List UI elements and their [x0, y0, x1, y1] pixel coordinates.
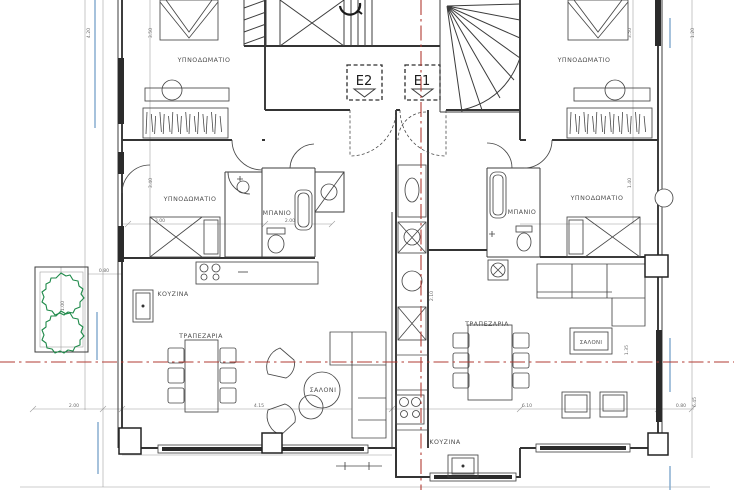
service-strip	[396, 165, 428, 430]
elevator-e2-label: E2	[356, 74, 373, 89]
elevator-shaft-x	[280, 0, 344, 46]
dimension-label: 6.10	[522, 403, 532, 409]
elevator-e1-box: E1	[405, 65, 440, 100]
sofa-right	[537, 264, 645, 326]
side-table-circle	[162, 80, 182, 100]
dimension-label: 2.00	[69, 403, 79, 409]
room-label-left-dining: ΤΡΑΠΕΖΑΡΙΑ	[178, 333, 223, 340]
dimension-label: 4.20	[86, 28, 92, 38]
dimension-label: 3.00	[155, 218, 165, 224]
room-label-right-bedroom-mid: ΥΠΝΟΔΩΜΑΤΙΟ	[570, 195, 624, 202]
floor-plan-page: E2 E1	[0, 0, 734, 490]
toilet-left	[268, 235, 284, 253]
room-label-right-bathroom: ΜΠΑΝΙΟ	[508, 209, 537, 216]
elevator-e1-label: E1	[414, 74, 431, 89]
dimension-label: 2.10	[429, 291, 435, 301]
room-label-left-bathroom: ΜΠΑΝΙΟ	[263, 210, 292, 217]
desk	[145, 88, 229, 101]
room-label-left-bedroom-top: ΥΠΝΟΔΩΜΑΤΙΟ	[177, 57, 231, 64]
dimension-label: 6.45	[692, 397, 698, 407]
room-label-left-bedroom-mid: ΥΠΝΟΔΩΜΑΤΙΟ	[163, 196, 217, 203]
toilet-right	[517, 233, 531, 251]
floor-plan-canvas: E2 E1	[0, 0, 734, 490]
wardrobe-hangers	[146, 112, 222, 134]
room-label-right-bedroom-top: ΥΠΝΟΔΩΜΑΤΙΟ	[557, 57, 611, 64]
winder-stair	[447, 4, 520, 112]
tv-bench	[336, 462, 382, 470]
room-label-right-kitchen: ΚΟΥΖΙΝΑ	[429, 439, 461, 446]
armchair	[267, 348, 295, 378]
dimension-label: 4.15	[254, 403, 264, 409]
elevator-e2-box: E2	[347, 65, 382, 100]
elevator-core: E2 E1	[244, 0, 520, 112]
furniture-left	[133, 0, 386, 470]
laundry-left	[315, 172, 344, 212]
desk	[574, 88, 650, 101]
bathtub-left	[295, 190, 312, 230]
wc-sink	[237, 181, 249, 193]
room-label-left-living: ΣΑΛΟΝΙ	[310, 387, 337, 394]
stool	[600, 392, 627, 417]
kitchen-counter-left	[196, 262, 318, 284]
dimension-label: 1.35	[624, 345, 630, 355]
room-label-right-living: ΣΑΛΟΝΙ	[580, 340, 603, 346]
side-table-circle	[605, 80, 625, 100]
dimension-label: 1.20	[690, 28, 696, 38]
dimension-label: 0.80	[99, 268, 109, 274]
dimension-label: 3.50	[627, 28, 633, 38]
furniture-right	[448, 0, 673, 477]
dimension-label: 3.50	[148, 28, 154, 38]
dimension-label: 2.00	[285, 218, 295, 224]
armchair	[267, 404, 295, 435]
shaft-hatch	[244, 0, 266, 44]
room-label-left-kitchen: ΚΟΥΖΙΝΑ	[157, 291, 189, 298]
dining-table-left	[185, 340, 218, 412]
room-label-right-dining: ΤΡΑΠΕΖΑΡΙΑ	[464, 321, 509, 328]
strip-table	[402, 271, 422, 291]
tree	[42, 311, 84, 353]
wardrobe-hangers	[570, 112, 646, 134]
bathtub-right	[490, 172, 506, 218]
dimension-label: 0.80	[676, 403, 686, 409]
dimension-label: 1.40	[627, 178, 633, 188]
walls	[118, 0, 662, 477]
dimension-label: 1.00	[60, 301, 66, 311]
stair-flight	[351, 0, 365, 46]
dimension-label: 3.40	[148, 178, 154, 188]
stool	[562, 392, 590, 418]
